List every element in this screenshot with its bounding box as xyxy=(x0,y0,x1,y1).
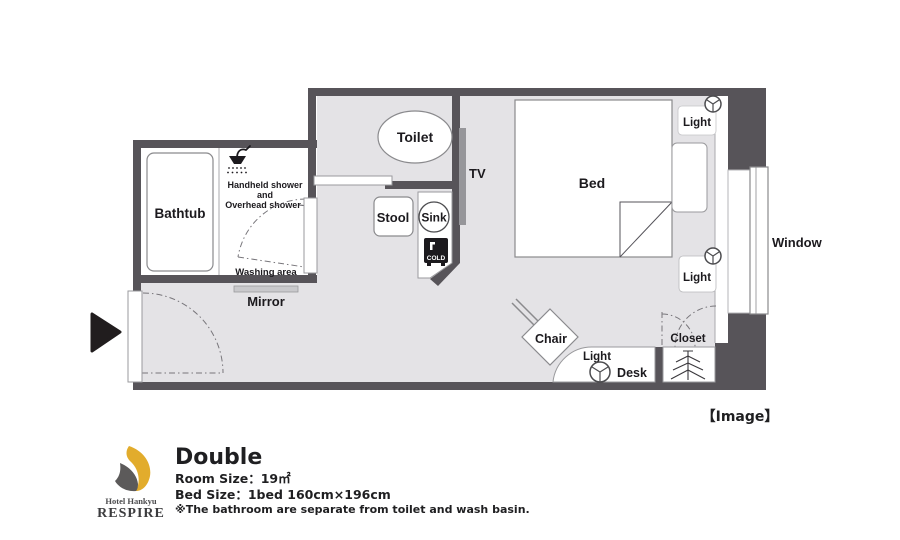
entrance-door xyxy=(128,291,142,382)
logo-hotel-text: Hotel Hankyu xyxy=(105,496,157,506)
label-chair: Chair xyxy=(535,332,567,346)
bathroom: Bathtub Handheld shower and Overhead sho… xyxy=(141,146,317,278)
closet xyxy=(663,347,715,382)
wall-bathroom-top xyxy=(133,140,317,148)
label-shower-line3: Overhead shower xyxy=(225,200,301,210)
wall-top xyxy=(309,88,766,96)
wall-right-upper-block xyxy=(728,96,766,170)
label-window: Window xyxy=(772,235,823,250)
bed-size: Bed Size：1bed 160cm×196cm xyxy=(175,487,391,502)
wall-bottom xyxy=(133,382,766,390)
label-bathtub: Bathtub xyxy=(155,206,206,221)
label-cold: COLD xyxy=(427,255,446,262)
wall-desk-closet-divider xyxy=(655,347,663,382)
wall-toilet-bottom xyxy=(385,181,452,189)
label-shower-line1: Handheld shower xyxy=(227,180,303,190)
mini-fridge: COLD xyxy=(424,238,448,266)
window-group: Window xyxy=(728,167,823,314)
entrance-arrow-icon xyxy=(92,314,120,351)
label-light-bottom: Light xyxy=(683,272,711,284)
logo-brand-text: RESPIRE xyxy=(97,506,165,521)
label-mirror: Mirror xyxy=(247,294,285,309)
label-light-desk: Light xyxy=(583,351,611,363)
label-stool: Stool xyxy=(377,210,410,225)
floor-plan-svg: Bathtub Handheld shower and Overhead sho… xyxy=(0,0,900,540)
footer: Hotel Hankyu RESPIRE Double Room Size：19… xyxy=(97,445,530,521)
label-toilet: Toilet xyxy=(397,129,434,145)
window xyxy=(750,167,768,314)
wall-room-divider xyxy=(452,96,460,263)
label-bed: Bed xyxy=(579,175,605,191)
window-recess xyxy=(728,170,750,313)
label-sink: Sink xyxy=(421,211,447,225)
tv xyxy=(459,128,466,225)
room-size: Room Size：19㎡ xyxy=(175,471,291,486)
toilet-sliding-door xyxy=(314,176,392,185)
room-type: Double xyxy=(175,445,262,470)
bathroom-door xyxy=(304,198,317,273)
logo-crescent-gray xyxy=(115,463,138,491)
label-shower-line2: and xyxy=(257,190,273,200)
floor-plan-page: Bathtub Handheld shower and Overhead sho… xyxy=(0,0,900,540)
label-washing-area: Washing area xyxy=(235,267,297,278)
label-light-top: Light xyxy=(683,117,711,129)
headboard-shelf xyxy=(672,143,707,212)
image-caption: 【Image】 xyxy=(702,409,779,425)
bathroom-note: ※The bathroom are separate from toilet a… xyxy=(175,503,530,516)
label-desk: Desk xyxy=(617,366,647,380)
corridor-floor xyxy=(141,280,471,382)
window-sill-strip xyxy=(715,96,728,343)
mirror xyxy=(234,286,298,292)
label-closet: Closet xyxy=(670,333,705,345)
hotel-logo: Hotel Hankyu RESPIRE xyxy=(97,446,165,521)
label-tv: TV xyxy=(469,166,486,181)
